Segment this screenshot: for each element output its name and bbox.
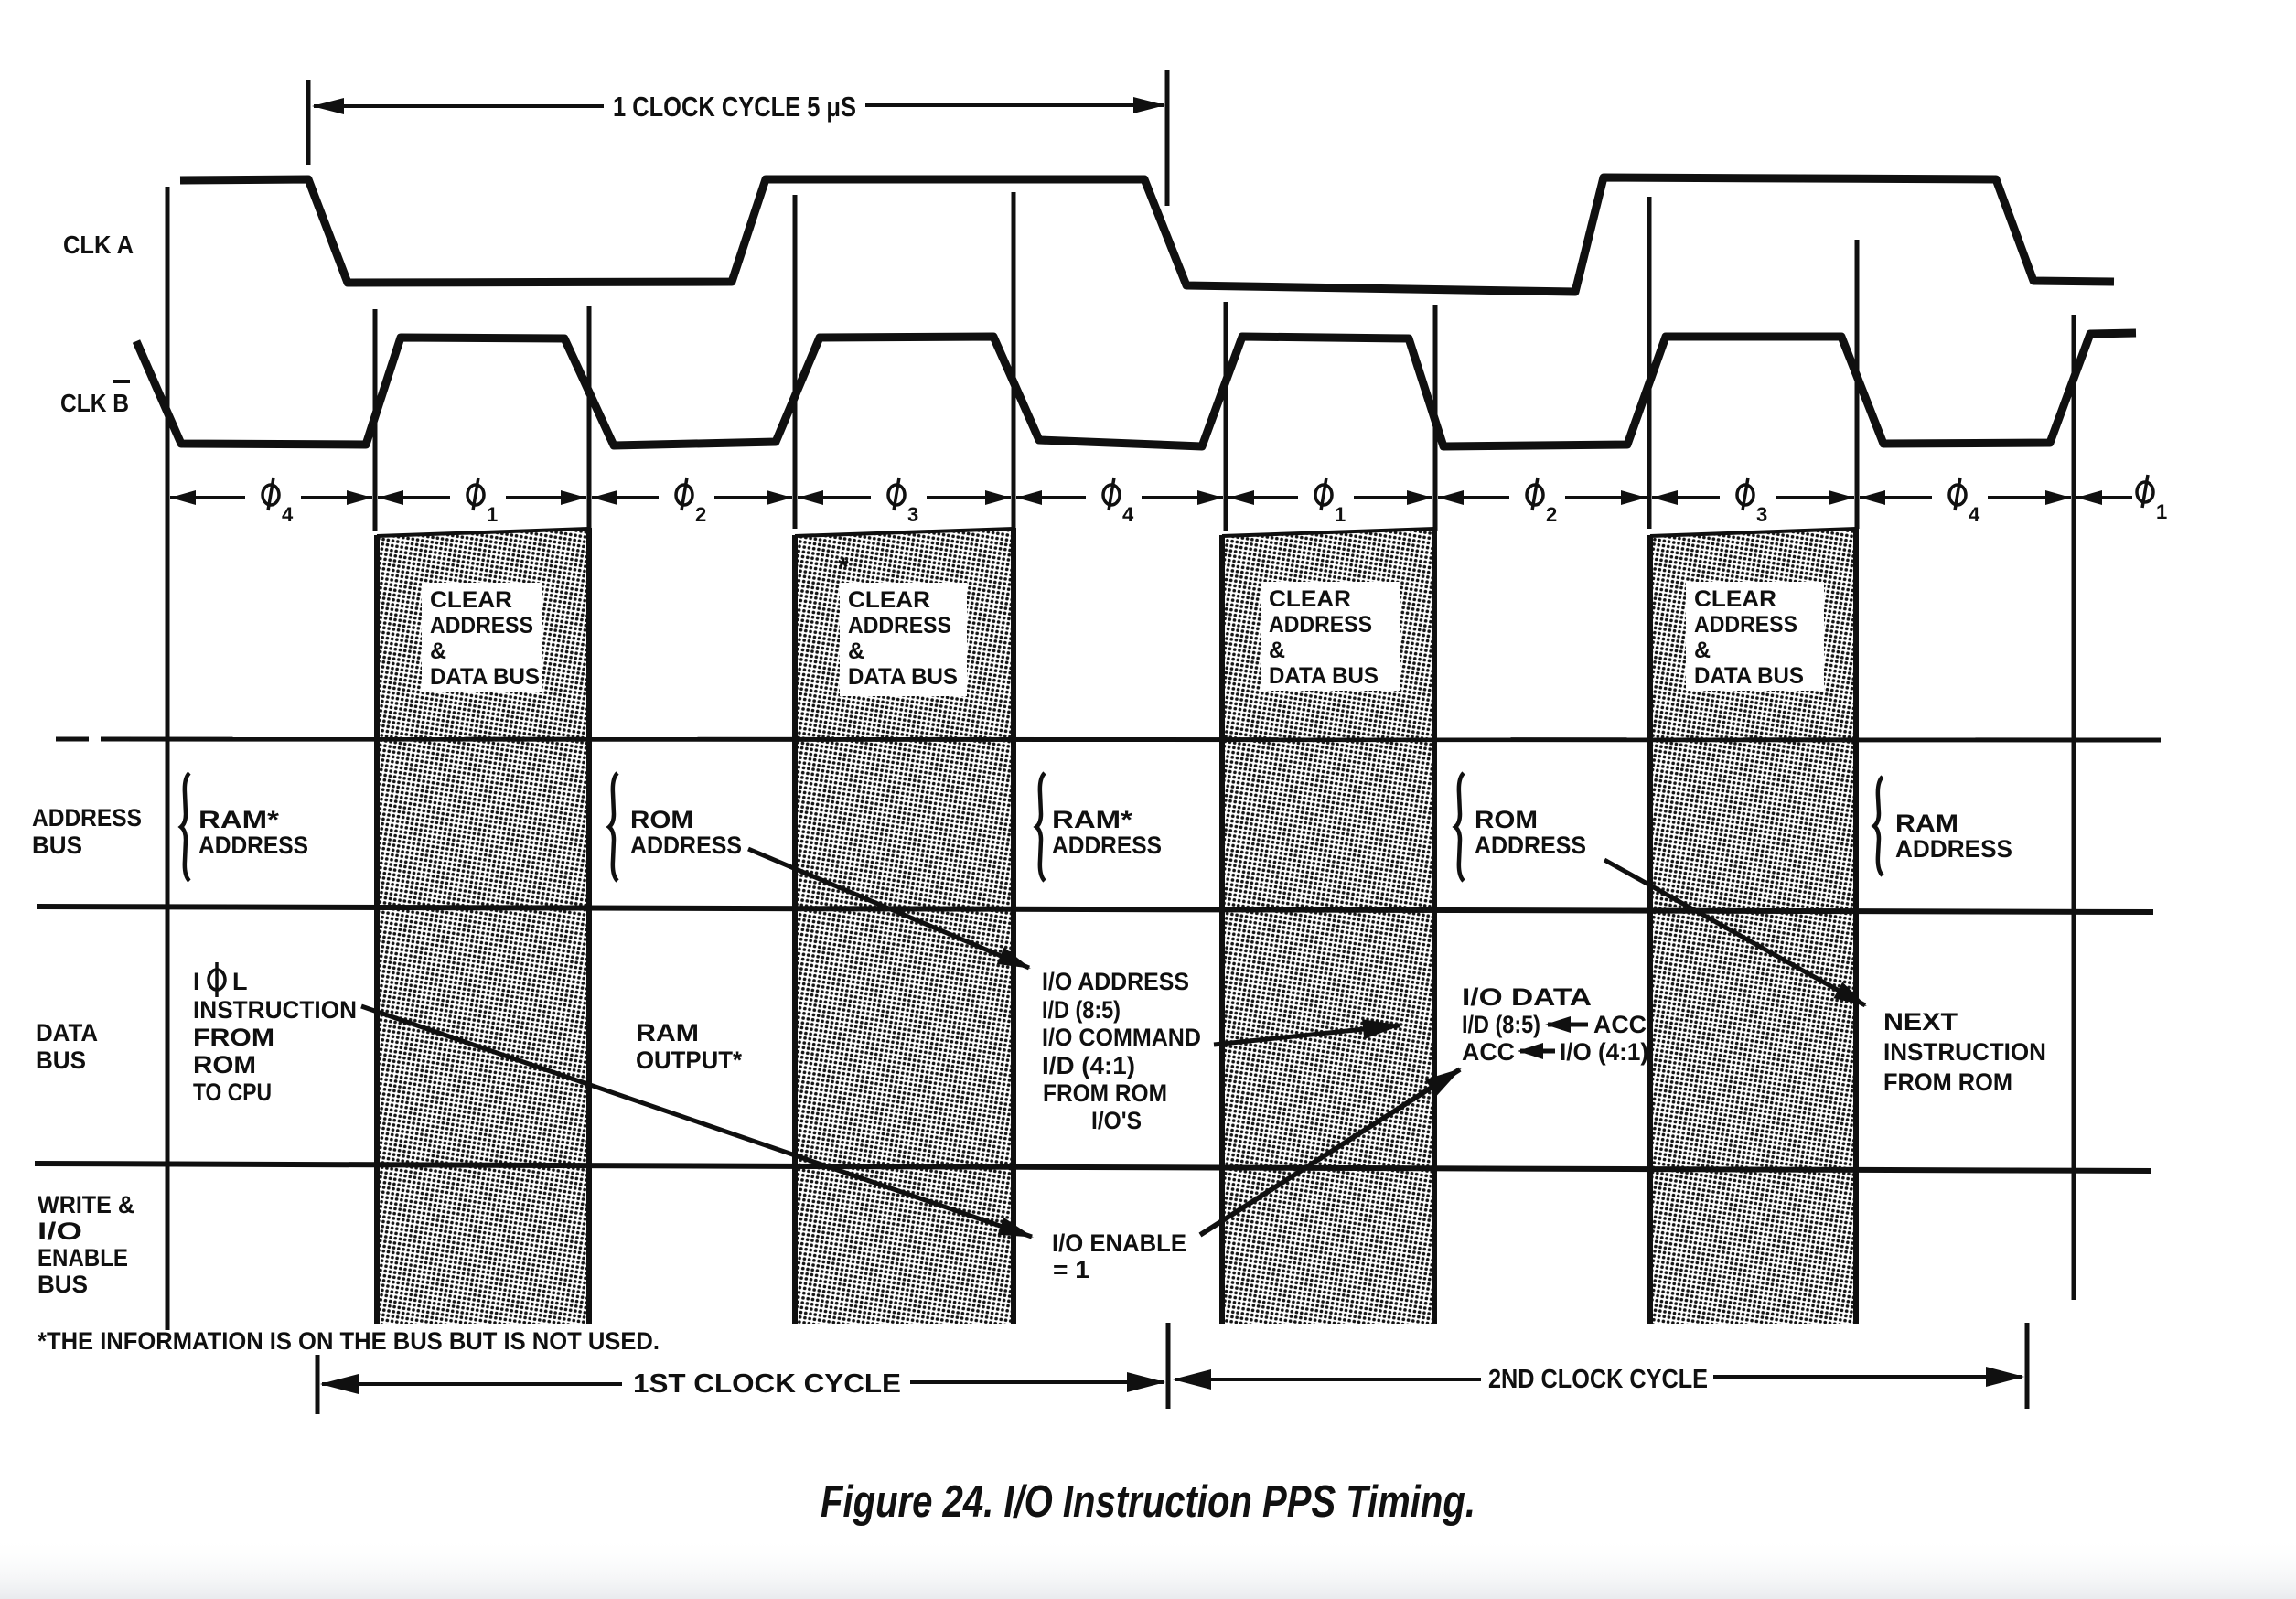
svg-text:DATA BUS: DATA BUS bbox=[1694, 663, 1804, 689]
svg-text:ADDRESS: ADDRESS bbox=[430, 613, 533, 639]
svg-text:1: 1 bbox=[487, 503, 498, 526]
svg-text:&: & bbox=[848, 639, 864, 664]
svg-text:2ND CLOCK CYCLE: 2ND CLOCK CYCLE bbox=[1488, 1365, 1708, 1394]
svg-text:2: 2 bbox=[695, 503, 706, 526]
svg-text:I/O ENABLE: I/O ENABLE bbox=[1052, 1229, 1186, 1257]
svg-text:TO CPU: TO CPU bbox=[193, 1079, 272, 1106]
svg-text:*THE INFORMATION IS ON THE BUS: *THE INFORMATION IS ON THE BUS BUT IS NO… bbox=[38, 1327, 660, 1355]
svg-text:CLK A: CLK A bbox=[63, 231, 134, 259]
svg-text:1ST CLOCK CYCLE: 1ST CLOCK CYCLE bbox=[633, 1369, 901, 1399]
svg-text:FROM: FROM bbox=[193, 1024, 274, 1051]
svg-text:I/D (4:1): I/D (4:1) bbox=[1042, 1052, 1135, 1079]
svg-text:I/D (8:5): I/D (8:5) bbox=[1462, 1011, 1540, 1038]
svg-text:ROM: ROM bbox=[193, 1051, 256, 1079]
svg-text:ADDRESS: ADDRESS bbox=[1052, 832, 1162, 859]
svg-text:ADDRESS: ADDRESS bbox=[1475, 832, 1586, 859]
svg-text:CLK B: CLK B bbox=[60, 389, 129, 417]
svg-text:4: 4 bbox=[1122, 503, 1134, 526]
svg-text:FROM ROM: FROM ROM bbox=[1043, 1079, 1167, 1107]
svg-text:3: 3 bbox=[907, 503, 918, 526]
svg-text:I/O (4:1): I/O (4:1) bbox=[1560, 1038, 1648, 1066]
svg-text:BUS: BUS bbox=[32, 832, 82, 859]
svg-text:DATA: DATA bbox=[36, 1019, 98, 1046]
svg-text:INSTRUCTION: INSTRUCTION bbox=[1883, 1038, 2046, 1066]
svg-text:Figure 24. I/O Instruction PPS: Figure 24. I/O Instruction PPS Timing. bbox=[821, 1477, 1475, 1527]
svg-text:I/O ADDRESS: I/O ADDRESS bbox=[1042, 968, 1189, 995]
svg-text:BUS: BUS bbox=[38, 1271, 88, 1298]
svg-text:OUTPUT*: OUTPUT* bbox=[636, 1046, 742, 1074]
svg-text:*: * bbox=[838, 553, 849, 583]
svg-text:CLEAR: CLEAR bbox=[1269, 586, 1351, 612]
svg-text:= 1: = 1 bbox=[1053, 1256, 1089, 1283]
svg-text:I/D (8:5): I/D (8:5) bbox=[1042, 996, 1121, 1024]
svg-text:CLEAR: CLEAR bbox=[1694, 586, 1776, 612]
svg-text:BUS: BUS bbox=[36, 1046, 86, 1074]
svg-text:ROM: ROM bbox=[1475, 806, 1538, 833]
svg-text:4: 4 bbox=[282, 503, 294, 526]
svg-text:RAM: RAM bbox=[1895, 810, 1958, 837]
svg-text:1: 1 bbox=[1335, 503, 1346, 526]
svg-text:I/O'S: I/O'S bbox=[1091, 1107, 1142, 1134]
svg-text:RAM*: RAM* bbox=[1052, 806, 1133, 833]
svg-text:DATA BUS: DATA BUS bbox=[848, 664, 958, 690]
svg-text:2: 2 bbox=[1546, 503, 1557, 526]
svg-text:FROM ROM: FROM ROM bbox=[1883, 1068, 2012, 1096]
svg-text:ACC: ACC bbox=[1462, 1038, 1515, 1066]
svg-text:ADDRESS: ADDRESS bbox=[1694, 612, 1797, 638]
svg-text:I/O DATA: I/O DATA bbox=[1462, 983, 1592, 1011]
svg-text:1 CLOCK CYCLE 5 μS: 1 CLOCK CYCLE 5 μS bbox=[613, 91, 856, 123]
svg-text:CLEAR: CLEAR bbox=[848, 587, 930, 613]
svg-text:CLEAR: CLEAR bbox=[430, 587, 512, 613]
svg-text:WRITE &: WRITE & bbox=[38, 1191, 134, 1218]
svg-text:I/O COMMAND: I/O COMMAND bbox=[1042, 1024, 1201, 1051]
svg-text:ADDRESS: ADDRESS bbox=[1269, 612, 1372, 638]
svg-text:DATA BUS: DATA BUS bbox=[430, 664, 540, 690]
svg-text:RAM*: RAM* bbox=[198, 806, 280, 833]
svg-text:ACC: ACC bbox=[1593, 1011, 1647, 1038]
svg-text:3: 3 bbox=[1756, 503, 1767, 526]
svg-text:L: L bbox=[232, 968, 248, 995]
svg-text:INSTRUCTION: INSTRUCTION bbox=[193, 996, 357, 1024]
svg-text:&: & bbox=[430, 639, 446, 664]
svg-text:RAM: RAM bbox=[636, 1019, 699, 1046]
svg-text:ENABLE: ENABLE bbox=[38, 1244, 128, 1272]
svg-text:ADDRESS: ADDRESS bbox=[198, 832, 308, 859]
svg-text:&: & bbox=[1269, 638, 1285, 663]
svg-text:I/O: I/O bbox=[38, 1218, 82, 1245]
svg-text:1: 1 bbox=[2156, 500, 2167, 523]
svg-text:NEXT: NEXT bbox=[1883, 1008, 1958, 1036]
svg-text:ADDRESS: ADDRESS bbox=[32, 804, 142, 832]
svg-text:ADDRESS: ADDRESS bbox=[630, 832, 742, 859]
svg-text:&: & bbox=[1694, 638, 1711, 663]
svg-text:I: I bbox=[193, 968, 200, 995]
svg-text:ADDRESS: ADDRESS bbox=[1895, 835, 2012, 863]
svg-text:ROM: ROM bbox=[630, 806, 693, 833]
svg-text:DATA BUS: DATA BUS bbox=[1269, 663, 1379, 689]
svg-text:4: 4 bbox=[1969, 503, 1980, 526]
svg-text:ADDRESS: ADDRESS bbox=[848, 613, 951, 639]
